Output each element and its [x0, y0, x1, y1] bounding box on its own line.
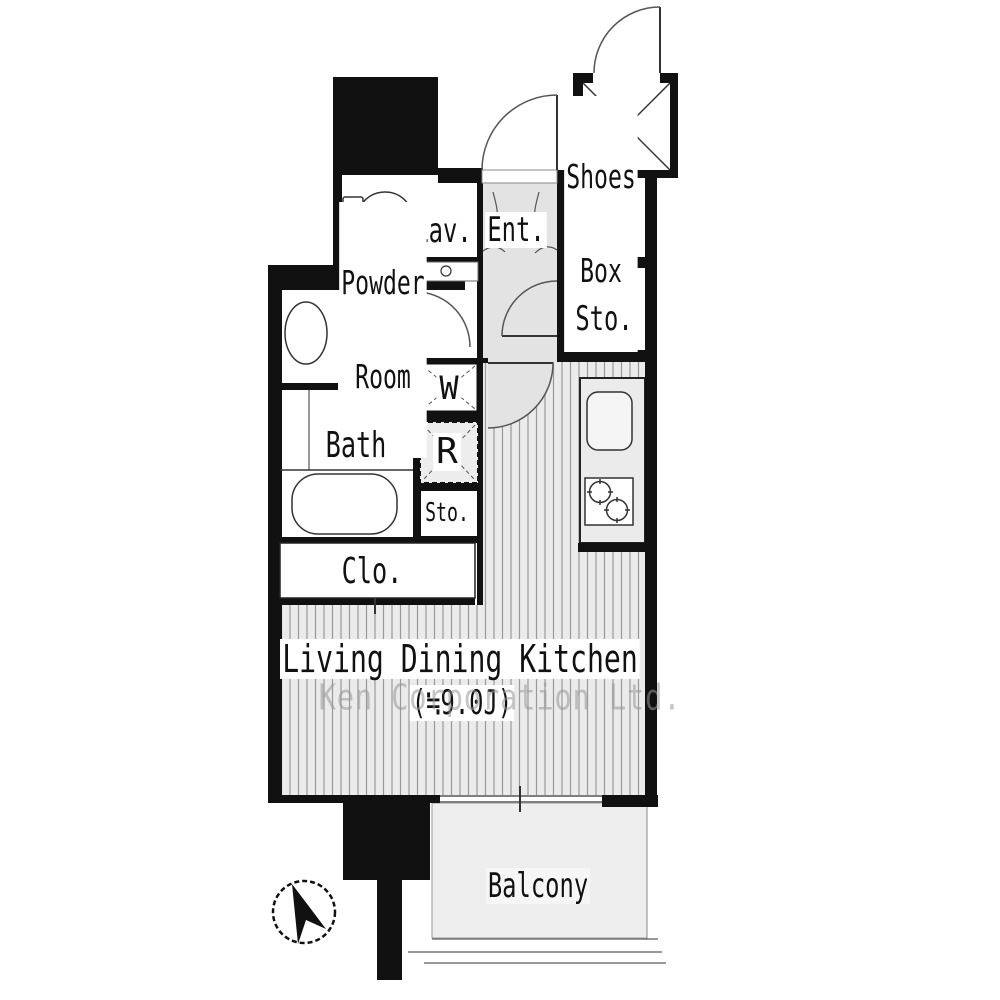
- floor-plan: Lav. Ent. Shoes Box Sto. Powder Room Bat…: [0, 0, 1000, 1000]
- room-label-bath: Bath: [324, 427, 389, 465]
- room-label-ldk: Living Dining Kitchen: [280, 639, 640, 679]
- entrance-door: [482, 95, 557, 170]
- shaft-door: [594, 7, 660, 73]
- room-label-powder-room: Powder Room: [339, 202, 427, 458]
- entrance-threshold: [482, 170, 557, 183]
- balcony-railing: [408, 939, 666, 963]
- room-label-sto-upper: Sto.: [573, 301, 635, 337]
- powder-room-basin: [285, 302, 327, 364]
- room-label-fridge: R: [433, 433, 461, 471]
- room-label-washer: W: [436, 371, 461, 405]
- room-label-ent: Ent.: [485, 212, 547, 248]
- floor-plan-drawing: [0, 0, 1000, 1000]
- room-label-balcony: Balcony: [486, 868, 591, 904]
- watermark: Ken Corporation Ltd.: [319, 678, 682, 719]
- north-compass-icon: [273, 881, 335, 944]
- room-label-closet: Clo.: [340, 553, 405, 591]
- room-label-sto-small: Sto.: [423, 499, 471, 527]
- stove: [585, 478, 633, 525]
- kitchen-sink: [587, 392, 632, 450]
